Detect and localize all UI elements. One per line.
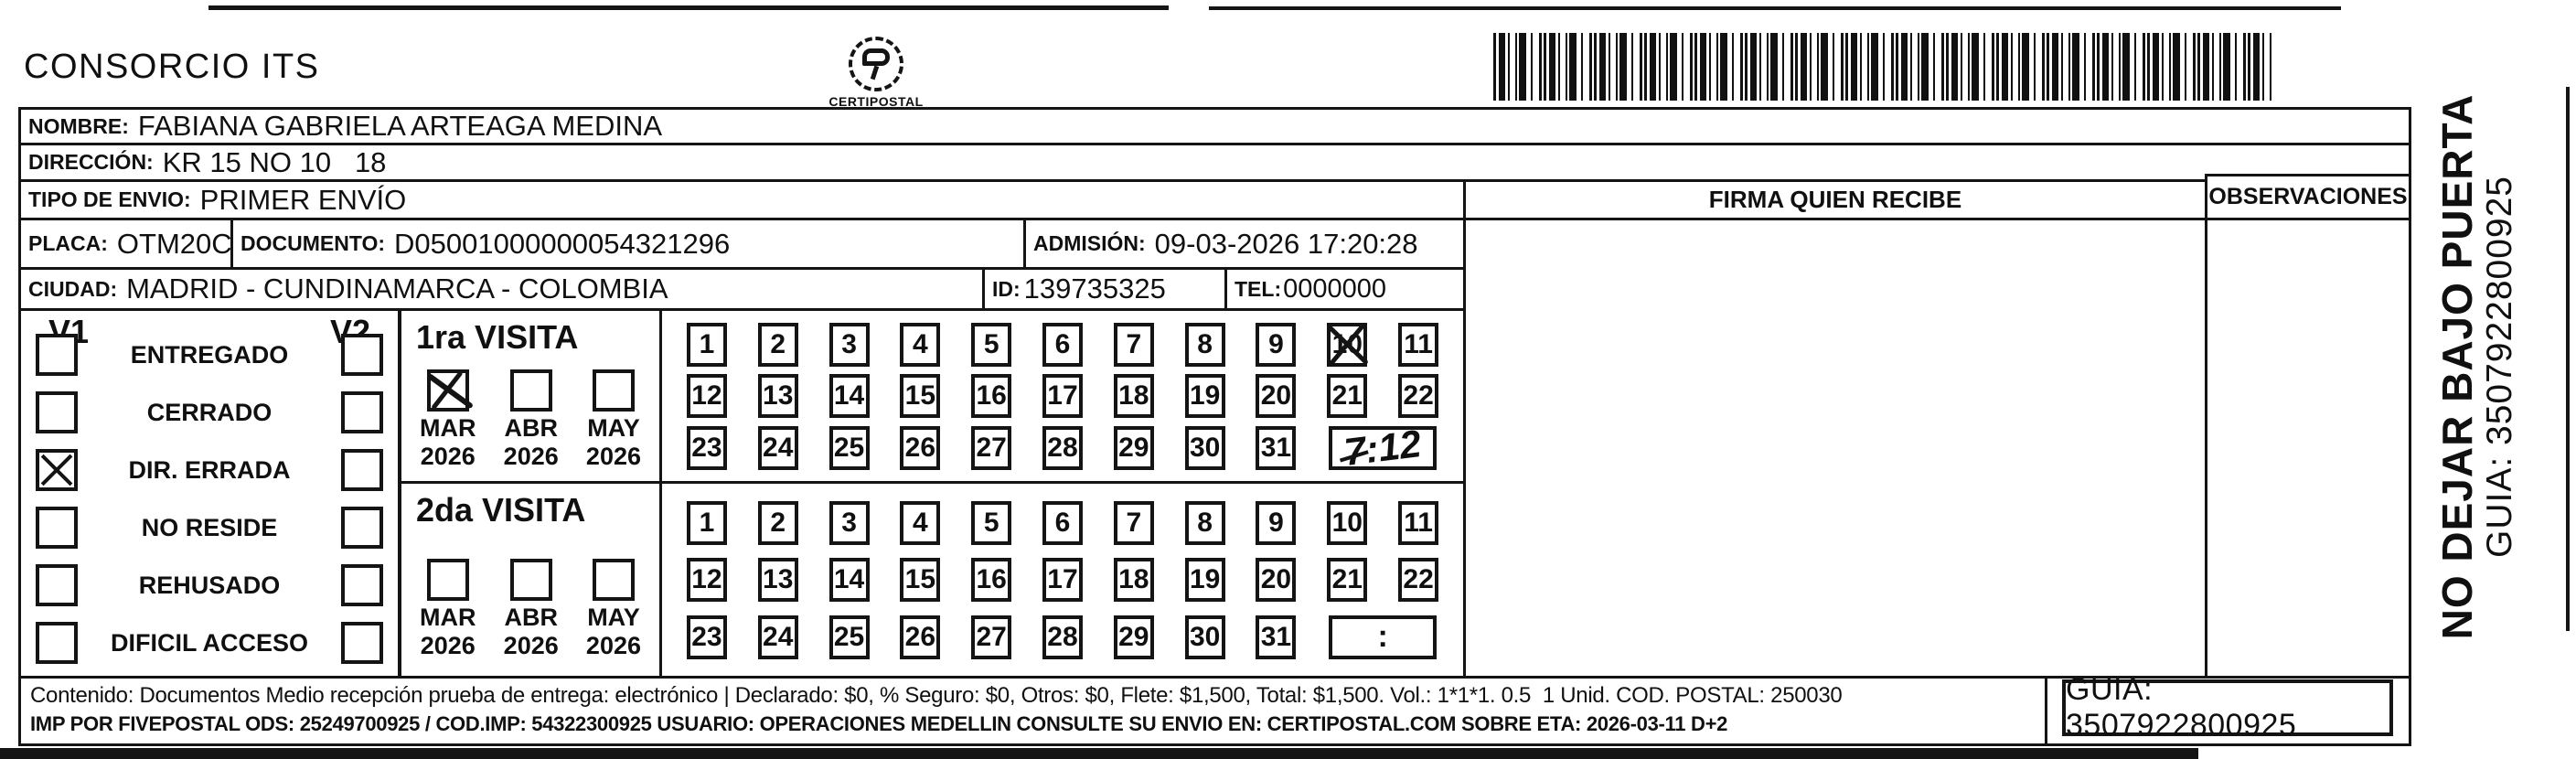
direccion-row: DIRECCIÓN: KR 15 NO 10 18: [18, 143, 2411, 182]
second-visit-time-cell[interactable]: :: [1329, 615, 1437, 659]
placa-cell: PLACA: OTM20C: [18, 218, 233, 270]
tel-value: 0000000: [1283, 274, 1386, 305]
second-visit-day-6[interactable]: 6: [1042, 501, 1083, 545]
second-visit-day-8[interactable]: 8: [1185, 501, 1225, 545]
status-label-rehusado: REHUSADO: [78, 572, 341, 600]
first-visit-day-29[interactable]: 29: [1114, 426, 1154, 470]
direccion-label: DIRECCIÓN:: [28, 150, 154, 175]
second-visit-calendar: 1234567891011121314151617181920212223242…: [659, 481, 1466, 679]
second-visit-month-mar: MAR 2026: [420, 559, 476, 660]
checkbox-entregado-v2[interactable]: [341, 334, 383, 376]
first-visit-day-16[interactable]: 16: [971, 374, 1011, 418]
checkbox-abr-2026-second-visit[interactable]: [510, 559, 552, 601]
checkbox-may-2026-first-visit[interactable]: [593, 369, 635, 412]
checkbox-may-2026-second-visit[interactable]: [593, 559, 635, 601]
first-visit-day-6[interactable]: 6: [1042, 323, 1083, 367]
first-visit-day-17[interactable]: 17: [1042, 374, 1083, 418]
first-visit-month-mar: MAR 2026: [420, 369, 476, 471]
checkbox-rehusado-v1[interactable]: [36, 564, 78, 606]
checkbox-dir-errada-v1[interactable]: [36, 449, 78, 491]
id-value: 139735325: [1024, 273, 1166, 305]
scan-artifact-right-edge: [2566, 87, 2570, 631]
first-visit-day-24[interactable]: 24: [758, 426, 798, 470]
company-name: CONSORCIO ITS: [24, 48, 320, 87]
placa-value: OTM20C: [117, 228, 232, 261]
documento-cell: DOCUMENTO: D05001000000054321296: [230, 218, 1026, 270]
second-visit-day-25[interactable]: 25: [829, 615, 870, 659]
second-visit-day-15[interactable]: 15: [900, 558, 940, 602]
observaciones-area[interactable]: [2205, 218, 2411, 679]
first-visit-day-28[interactable]: 28: [1042, 426, 1083, 470]
first-visit-day-4[interactable]: 4: [900, 323, 940, 367]
scan-artifact-top-line-1: [208, 5, 1169, 10]
status-label-cerrado: CERRADO: [78, 399, 341, 427]
certipostal-logo-icon: [849, 37, 903, 91]
no-dejar-bajo-puerta-note: NO DEJAR BAJO PUERTA: [2434, 92, 2481, 641]
second-visit-day-20[interactable]: 20: [1256, 558, 1296, 602]
admision-cell: ADMISIÓN: 09-03-2026 17:20:28: [1023, 218, 1466, 270]
second-visit-day-5[interactable]: 5: [971, 501, 1011, 545]
checkbox-dificil-acceso-v1[interactable]: [36, 622, 78, 664]
checkbox-no-reside-v2[interactable]: [341, 507, 383, 549]
documento-label: DOCUMENTO:: [240, 231, 385, 256]
delivery-status-box: V1 V2 ENTREGADO CERRADO DIR. ERRADA NO R…: [18, 308, 401, 679]
certipostal-logo: CERTIPOSTAL: [815, 37, 937, 114]
first-visit-day-19[interactable]: 19: [1185, 374, 1225, 418]
second-visit-day-4[interactable]: 4: [900, 501, 940, 545]
second-visit-month-abr: ABR 2026: [504, 559, 559, 660]
status-label-entregado: ENTREGADO: [78, 341, 341, 369]
id-cell: ID: 139735325: [982, 267, 1227, 311]
status-row-entregado: ENTREGADO: [21, 333, 398, 377]
placa-label: PLACA:: [28, 231, 108, 256]
first-visit-day-2[interactable]: 2: [758, 323, 798, 367]
first-visit-day-12[interactable]: 12: [687, 374, 727, 418]
second-visit-day-16[interactable]: 16: [971, 558, 1011, 602]
second-visit-day-11[interactable]: 11: [1398, 501, 1438, 545]
status-label-dir-errada: DIR. ERRADA: [78, 456, 341, 485]
first-visit-day-8[interactable]: 8: [1185, 323, 1225, 367]
second-visit-day-12[interactable]: 12: [687, 558, 727, 602]
first-visit-day-23[interactable]: 23: [687, 426, 727, 470]
scan-artifact-bottom-bar: [0, 748, 2198, 759]
status-row-cerrado: CERRADO: [21, 390, 398, 434]
firma-signature-area[interactable]: [1463, 218, 2207, 679]
guia-number: GUIA: 3507922800925: [2062, 679, 2393, 736]
admision-value: 09-03-2026 17:20:28: [1155, 228, 1418, 261]
id-label: ID:: [992, 277, 1021, 302]
side-note-rotated: NO DEJAR BAJO PUERTA GUIA: 3507922800925: [2434, 92, 2537, 641]
first-visit-day-30[interactable]: 30: [1185, 426, 1225, 470]
checkbox-cerrado-v1[interactable]: [36, 391, 78, 433]
first-visit-day-15[interactable]: 15: [900, 374, 940, 418]
ciudad-value: MADRID - CUNDINAMARCA - COLOMBIA: [126, 273, 668, 305]
tipo-envio-value: PRIMER ENVÍO: [200, 184, 407, 217]
guia-footer-box: GUIA: 3507922800925: [2045, 676, 2411, 746]
checkbox-mar-2026-second-visit[interactable]: [427, 559, 469, 601]
first-visit-day-21[interactable]: 21: [1327, 374, 1367, 418]
first-visit-box: 1ra VISITA MAR 2026 ABR 2026 MAY 2026: [399, 308, 662, 484]
second-visit-day-3[interactable]: 3: [829, 501, 870, 545]
first-visit-day-14[interactable]: 14: [829, 374, 870, 418]
admision-label: ADMISIÓN:: [1033, 231, 1146, 256]
checkbox-dir-errada-v2[interactable]: [341, 449, 383, 491]
second-visit-day-24[interactable]: 24: [758, 615, 798, 659]
first-visit-day-13[interactable]: 13: [758, 374, 798, 418]
checkbox-no-reside-v1[interactable]: [36, 507, 78, 549]
first-visit-day-1[interactable]: 1: [687, 323, 727, 367]
observaciones-header: OBSERVACIONES: [2205, 174, 2411, 220]
nombre-value: FABIANA GABRIELA ARTEAGA MEDINA: [138, 110, 662, 143]
second-visit-day-29[interactable]: 29: [1114, 615, 1154, 659]
nombre-row: NOMBRE: FABIANA GABRIELA ARTEAGA MEDINA: [18, 107, 2411, 145]
first-visit-day-31[interactable]: 31: [1256, 426, 1296, 470]
tel-label: TEL:: [1235, 277, 1281, 302]
second-visit-day-2[interactable]: 2: [758, 501, 798, 545]
first-visit-title: 1ra VISITA: [416, 318, 659, 357]
second-visit-day-9[interactable]: 9: [1256, 501, 1296, 545]
first-visit-day-22[interactable]: 22: [1398, 374, 1438, 418]
second-visit-day-17[interactable]: 17: [1042, 558, 1083, 602]
first-visit-day-20[interactable]: 20: [1256, 374, 1296, 418]
footer-imp-line: IMP POR FIVEPOSTAL ODS: 25249700925 / CO…: [30, 712, 2036, 736]
first-visit-day-9[interactable]: 9: [1256, 323, 1296, 367]
checkbox-mar-2026-first-visit[interactable]: [427, 369, 469, 412]
second-visit-day-grid: 1234567891011121314151617181920212223242…: [662, 484, 1463, 676]
nombre-label: NOMBRE:: [28, 114, 129, 139]
first-visit-day-26[interactable]: 26: [900, 426, 940, 470]
second-visit-title: 2da VISITA: [416, 491, 659, 529]
first-visit-time-cell[interactable]: 7:12: [1329, 426, 1437, 470]
first-visit-day-18[interactable]: 18: [1114, 374, 1154, 418]
second-visit-day-19[interactable]: 19: [1185, 558, 1225, 602]
second-visit-box: 2da VISITA MAR 2026 ABR 2026 MAY 2026: [399, 481, 662, 679]
status-row-dir-errada: DIR. ERRADA: [21, 448, 398, 492]
first-visit-day-7[interactable]: 7: [1114, 323, 1154, 367]
first-visit-day-10[interactable]: 10: [1327, 323, 1367, 367]
tipo-envio-label: TIPO DE ENVIO:: [28, 187, 191, 212]
second-visit-day-21[interactable]: 21: [1327, 558, 1367, 602]
status-row-dificil-acceso: DIFICIL ACCESO: [21, 621, 398, 665]
direccion-value: KR 15 NO 10 18: [163, 146, 387, 179]
status-label-no-reside: NO RESIDE: [78, 514, 341, 542]
checkbox-entregado-v1[interactable]: [36, 334, 78, 376]
first-visit-month-may: MAY 2026: [586, 369, 641, 471]
second-visit-day-22[interactable]: 22: [1398, 558, 1438, 602]
checkbox-abr-2026-first-visit[interactable]: [510, 369, 552, 412]
scan-artifact-top-line-2: [1209, 6, 2341, 10]
first-visit-month-abr: ABR 2026: [504, 369, 559, 471]
speech-bubble-icon: [862, 48, 890, 66]
status-row-no-reside: NO RESIDE: [21, 506, 398, 550]
ciudad-label: CIUDAD:: [28, 277, 117, 302]
checkbox-cerrado-v2[interactable]: [341, 391, 383, 433]
second-visit-month-may: MAY 2026: [586, 559, 641, 660]
second-visit-day-27[interactable]: 27: [971, 615, 1011, 659]
second-visit-day-1[interactable]: 1: [687, 501, 727, 545]
second-visit-day-26[interactable]: 26: [900, 615, 940, 659]
second-visit-day-23[interactable]: 23: [687, 615, 727, 659]
tracking-barcode: [1493, 33, 2272, 101]
first-visit-day-grid: 1234567891011121314151617181920212223242…: [662, 311, 1463, 481]
status-row-rehusado: REHUSADO: [21, 563, 398, 607]
second-visit-day-7[interactable]: 7: [1114, 501, 1154, 545]
first-visit-day-25[interactable]: 25: [829, 426, 870, 470]
ciudad-cell: CIUDAD: MADRID - CUNDINAMARCA - COLOMBIA: [18, 267, 985, 311]
second-visit-day-28[interactable]: 28: [1042, 615, 1083, 659]
first-visit-calendar: 1234567891011121314151617181920212223242…: [659, 308, 1466, 484]
checkbox-dificil-acceso-v2[interactable]: [341, 622, 383, 664]
second-visit-day-13[interactable]: 13: [758, 558, 798, 602]
side-guia-number: GUIA: 3507922800925: [2481, 92, 2520, 641]
second-visit-day-31[interactable]: 31: [1256, 615, 1296, 659]
speech-bubble-tail-icon: [871, 66, 879, 80]
firma-quien-recibe-header: FIRMA QUIEN RECIBE: [1463, 179, 2207, 220]
footer-info-box: Contenido: Documentos Medio recepción pr…: [18, 676, 2047, 746]
documento-value: D05001000000054321296: [394, 228, 730, 261]
first-visit-day-11[interactable]: 11: [1398, 323, 1438, 367]
second-visit-day-18[interactable]: 18: [1114, 558, 1154, 602]
second-visit-day-14[interactable]: 14: [829, 558, 870, 602]
first-visit-day-3[interactable]: 3: [829, 323, 870, 367]
second-visit-day-30[interactable]: 30: [1185, 615, 1225, 659]
status-label-dificil-acceso: DIFICIL ACCESO: [78, 629, 341, 657]
first-visit-day-27[interactable]: 27: [971, 426, 1011, 470]
tipo-envio-row: TIPO DE ENVIO: PRIMER ENVÍO: [18, 179, 1466, 220]
tel-cell: TEL: 0000000: [1224, 267, 1466, 311]
footer-content-line: Contenido: Documentos Medio recepción pr…: [30, 683, 2036, 709]
checkbox-rehusado-v2[interactable]: [341, 564, 383, 606]
second-visit-day-10[interactable]: 10: [1327, 501, 1367, 545]
first-visit-day-5[interactable]: 5: [971, 323, 1011, 367]
first-visit-day-10-cross-mark: [1331, 326, 1363, 363]
